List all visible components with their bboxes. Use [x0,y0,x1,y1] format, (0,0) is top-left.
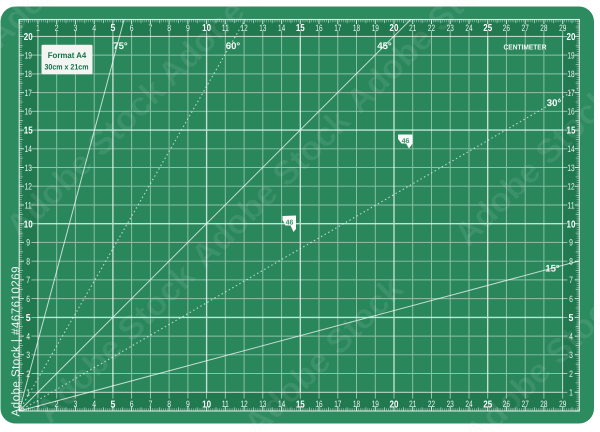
svg-text:4: 4 [92,399,96,409]
svg-text:24: 24 [465,23,472,33]
svg-text:1: 1 [36,399,40,409]
svg-text:11: 11 [25,200,32,210]
svg-text:6: 6 [26,294,30,304]
svg-text:60°: 60° [226,41,241,52]
svg-text:7: 7 [26,275,30,285]
svg-text:8: 8 [167,399,171,409]
svg-text:45°: 45° [377,41,392,52]
svg-text:22: 22 [428,399,435,409]
svg-text:11: 11 [222,23,229,33]
svg-text:5: 5 [26,313,31,324]
svg-text:9: 9 [186,23,190,33]
svg-text:15: 15 [296,23,305,34]
svg-text:5: 5 [110,400,115,411]
svg-text:6: 6 [130,399,134,409]
svg-text:12: 12 [241,399,248,409]
svg-text:3: 3 [74,399,78,409]
svg-text:19: 19 [372,399,379,409]
svg-text:18: 18 [567,69,574,79]
svg-text:16: 16 [25,107,32,117]
svg-text:10: 10 [567,219,576,230]
svg-text:5: 5 [110,23,115,34]
svg-text:27: 27 [522,399,529,409]
svg-text:17: 17 [334,399,341,409]
svg-text:9: 9 [569,238,573,248]
svg-text:12: 12 [25,182,32,192]
svg-text:5: 5 [569,313,574,324]
svg-text:18: 18 [25,69,32,79]
svg-text:1: 1 [26,388,30,398]
svg-text:21: 21 [409,399,416,409]
svg-text:2: 2 [569,369,573,379]
svg-text:26: 26 [503,23,510,33]
svg-text:21: 21 [409,23,416,33]
svg-text:1: 1 [569,388,573,398]
svg-text:3: 3 [74,23,78,33]
svg-text:4: 4 [26,331,30,341]
svg-text:2: 2 [26,369,30,379]
svg-text:25: 25 [483,23,492,34]
svg-text:75°: 75° [113,41,128,52]
svg-text:9: 9 [186,399,190,409]
svg-text:14: 14 [567,144,574,154]
svg-text:28: 28 [540,23,547,33]
svg-text:3: 3 [26,350,30,360]
svg-text:20: 20 [567,32,576,43]
svg-text:22: 22 [428,23,435,33]
svg-text:13: 13 [25,163,32,173]
svg-text:46: 46 [402,138,410,145]
svg-text:11: 11 [222,399,229,409]
svg-text:9: 9 [26,238,30,248]
svg-text:1: 1 [36,23,40,33]
svg-text:13: 13 [259,23,266,33]
svg-text:26: 26 [503,399,510,409]
svg-text:Format A4: Format A4 [48,51,87,60]
svg-text:10: 10 [202,400,211,411]
svg-text:30°: 30° [547,98,562,109]
svg-text:14: 14 [25,144,32,154]
svg-text:15: 15 [296,400,305,411]
svg-text:23: 23 [447,399,454,409]
svg-text:CENTIMETER: CENTIMETER [504,43,548,52]
svg-text:24: 24 [465,399,472,409]
svg-text:12: 12 [241,23,248,33]
svg-text:2: 2 [55,23,59,33]
svg-text:11: 11 [567,200,574,210]
svg-text:46: 46 [286,220,294,227]
svg-text:27: 27 [522,23,529,33]
svg-text:20: 20 [24,32,33,43]
svg-text:7: 7 [149,23,153,33]
svg-text:13: 13 [567,163,574,173]
svg-text:7: 7 [569,275,573,285]
svg-text:29: 29 [559,399,566,409]
svg-text:17: 17 [567,88,574,98]
svg-text:14: 14 [278,23,285,33]
svg-text:18: 18 [353,23,360,33]
svg-text:14: 14 [278,399,285,409]
svg-text:12: 12 [567,182,574,192]
svg-text:23: 23 [447,23,454,33]
svg-text:7: 7 [149,399,153,409]
svg-text:15: 15 [567,126,576,137]
svg-text:30cm x 21cm: 30cm x 21cm [45,63,89,72]
svg-text:10: 10 [202,23,211,34]
svg-text:16: 16 [567,107,574,117]
svg-text:17: 17 [25,88,32,98]
svg-text:6: 6 [569,294,573,304]
svg-text:8: 8 [26,257,30,267]
svg-text:6: 6 [130,23,134,33]
svg-text:16: 16 [315,399,322,409]
svg-text:17: 17 [334,23,341,33]
svg-text:4: 4 [92,23,96,33]
svg-text:8: 8 [569,257,573,267]
svg-text:28: 28 [540,399,547,409]
svg-text:10: 10 [24,219,33,230]
svg-text:16: 16 [315,23,322,33]
svg-text:25: 25 [483,400,492,411]
svg-text:8: 8 [167,23,171,33]
svg-text:19: 19 [372,23,379,33]
svg-text:20: 20 [390,400,399,411]
svg-text:15°: 15° [545,264,560,275]
svg-text:4: 4 [569,331,573,341]
svg-text:19: 19 [567,50,574,60]
svg-text:Adobe Stock | #467610269: Adobe Stock | #467610269 [9,266,22,416]
svg-text:18: 18 [353,399,360,409]
svg-text:2: 2 [55,399,59,409]
svg-text:15: 15 [24,126,33,137]
svg-text:29: 29 [559,23,566,33]
svg-text:13: 13 [259,399,266,409]
svg-text:3: 3 [569,350,573,360]
svg-text:20: 20 [390,23,399,34]
svg-text:19: 19 [25,50,32,60]
